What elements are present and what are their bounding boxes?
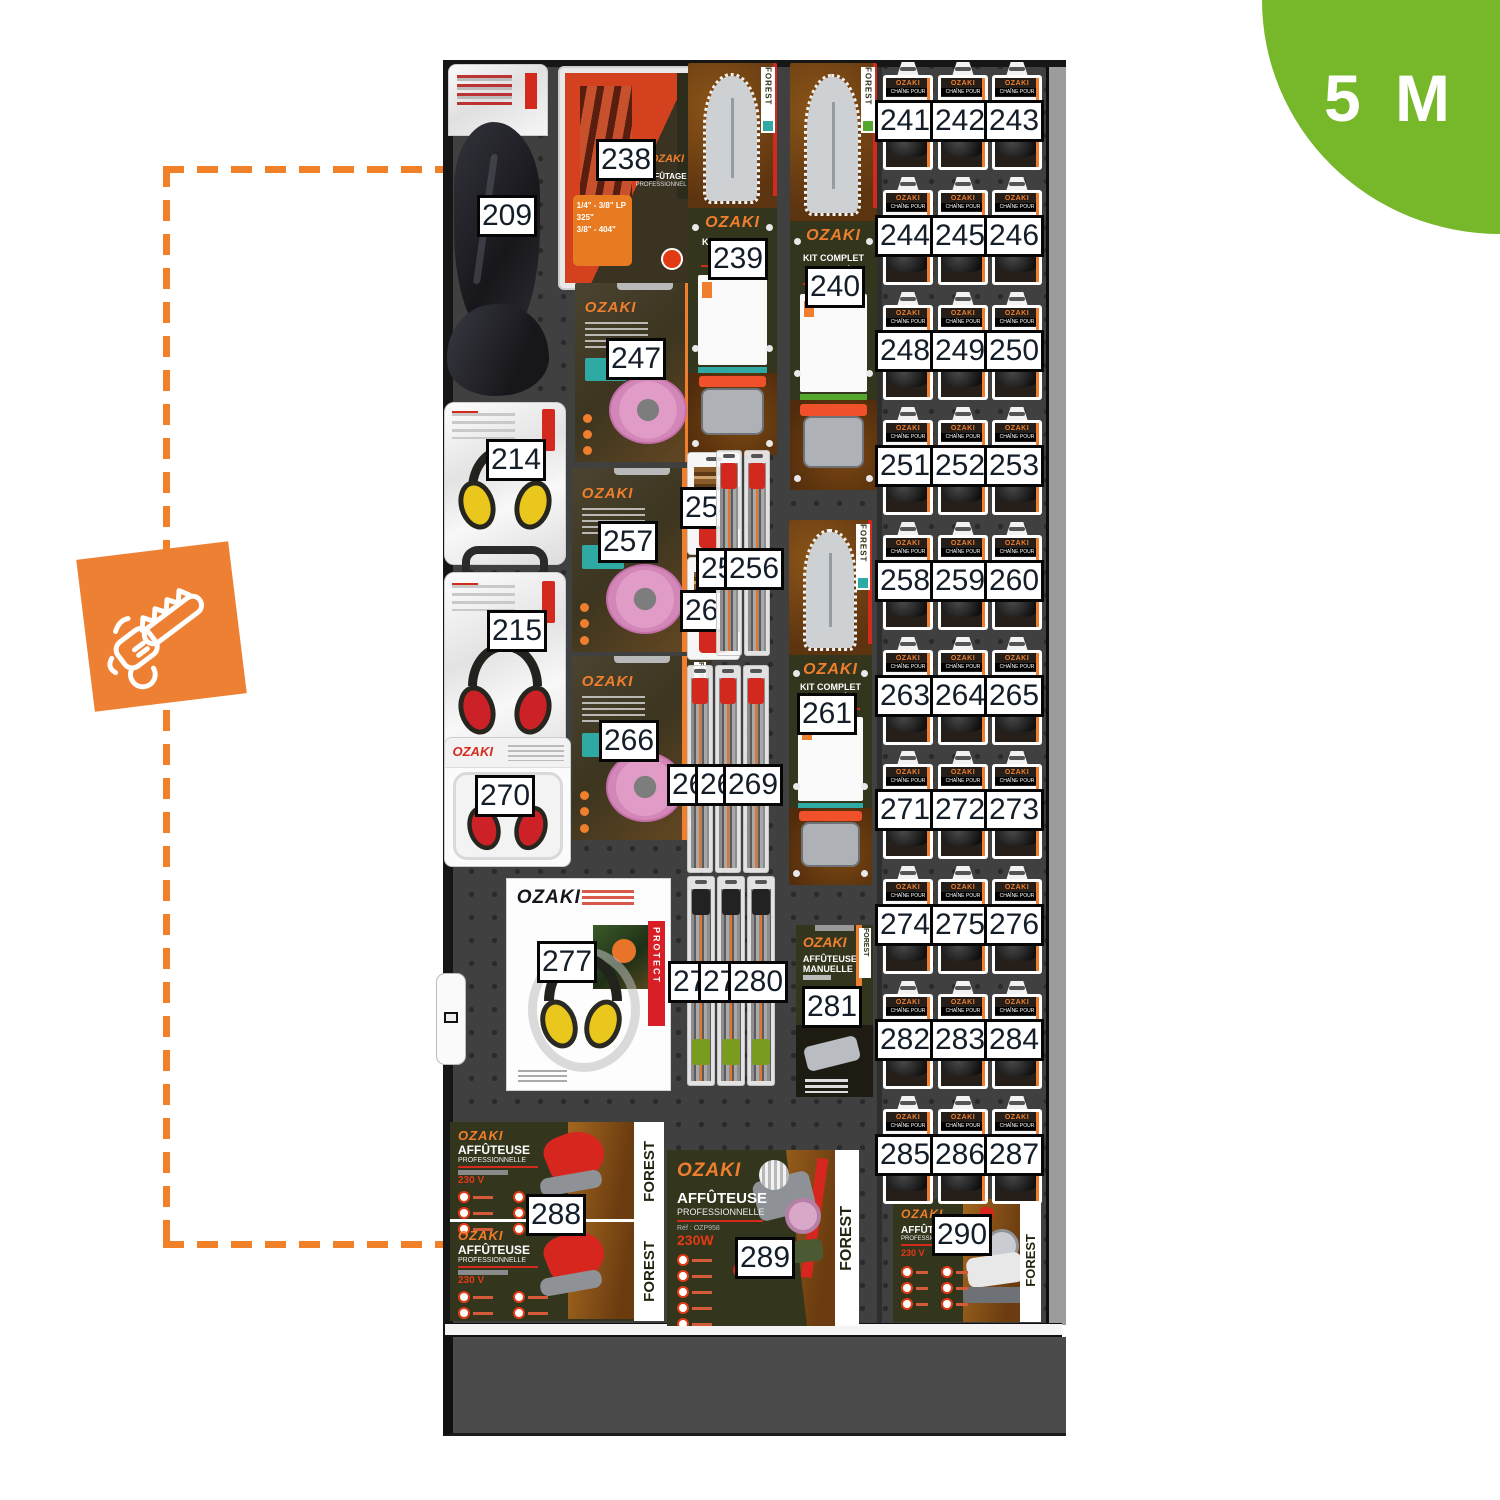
product-285[interactable]: OZAKI CHAÎNE POUR 285 [883,1096,933,1204]
item-number-label: 286 [930,1134,990,1176]
product-276[interactable]: OZAKI CHAÎNE POUR 276 [992,866,1042,974]
forest-tag: FOREST [1023,1234,1038,1287]
banner-title: AFFÛTEUSE [458,1243,558,1257]
brand-logo: OZAKI [995,655,1039,662]
feature-bullet [458,1307,503,1319]
feature-bullet [458,1191,503,1203]
wood-photo-lower [688,373,777,455]
chain-card-title: CHAÎNE POUR [886,1007,930,1015]
chain-card-title: CHAÎNE POUR [941,548,985,556]
hang-strip [815,925,854,931]
product-275[interactable]: OZAKI CHAÎNE POUR 275 [938,866,988,974]
chain-card-title: CHAÎNE POUR [995,433,1039,441]
ear-cup [508,681,556,739]
chain-card-title: CHAÎNE POUR [941,203,985,211]
banner-subtitle: PROFESSIONNELLE [458,1257,558,1264]
chain-card-title: CHAÎNE POUR [941,892,985,900]
brand-logo: OZAKI [995,195,1039,202]
product-259[interactable]: OZAKI CHAÎNE POUR 259 [938,522,988,630]
forest-strip: FOREST FOREST [634,1122,664,1321]
product-242[interactable]: OZAKI CHAÎNE POUR 242 [938,62,988,170]
item-number-label: 288 [526,1194,586,1236]
kit-title: KIT COMPLET [790,253,877,263]
green-handle [692,1039,710,1065]
product-248[interactable]: OZAKI CHAÎNE POUR 248 [883,292,933,400]
product-243[interactable]: OZAKI CHAÎNE POUR 243 [992,62,1042,170]
item-number-label: 240 [805,266,865,308]
peg-hole [861,783,868,790]
item-number-label: 269 [723,764,783,806]
feature-bullet [513,1291,558,1303]
chain-card-title: CHAÎNE POUR [886,1122,930,1130]
item-number-label: 263 [875,675,935,717]
item-number-label: 256 [724,548,784,590]
feature-bullet [901,1266,931,1278]
feature-bullet [677,1286,777,1298]
protect-tag: PROTECT [648,921,665,1026]
category-tile[interactable] [76,541,247,712]
product-260[interactable]: OZAKI CHAÎNE POUR 260 [992,522,1042,630]
product-246[interactable]: OZAKI CHAÎNE POUR 246 [992,177,1042,285]
item-number-label: 273 [984,789,1044,831]
feature-bullet [901,1282,931,1294]
product-238[interactable]: OZAKI KIT AFFÛTAGE PROFESSIONNEL 1/4" - … [558,66,700,290]
guide-bar-end [701,388,763,436]
forest-tag: FOREST [859,928,871,978]
feature-bullet [677,1302,777,1314]
hang-slot [751,454,763,458]
brand-logo: OZAKI [995,769,1039,776]
bullet-icon [580,603,589,612]
brand-logo: OZAKI [803,934,847,950]
chain-card-title: CHAÎNE POUR [886,892,930,900]
product-271[interactable]: OZAKI CHAÎNE POUR 271 [883,751,933,859]
earmuff-display-card: OZAKI PROTECT [506,878,671,1091]
item-number-label: 209 [477,195,537,237]
brand-logo: OZAKI [995,884,1039,891]
product-284[interactable]: OZAKI CHAÎNE POUR 284 [992,981,1042,1089]
brand-logo: OZAKI [941,425,985,432]
chain-card-title: CHAÎNE POUR [941,88,985,96]
chain-card-title: CHAÎNE POUR [995,203,1039,211]
brand-logo: OZAKI [886,540,930,547]
grinding-wheel [606,564,684,634]
item-number-label: 248 [875,330,935,372]
clip-label [444,1012,458,1023]
guide-dash-top [163,166,447,173]
chain-card-title: CHAÎNE POUR [941,663,985,671]
size-badge: 5 M [1262,0,1500,234]
brand-logo: OZAKI [886,1114,930,1121]
product-250[interactable]: OZAKI CHAÎNE POUR 250 [992,292,1042,400]
label-text-lines [452,413,514,439]
brand-logo: OZAKI [886,310,930,317]
item-number-label: 245 [930,215,990,257]
banner-subtitle: PROFESSIONNELLE [677,1207,777,1217]
chain-clamp [699,376,767,387]
bullet-icon [580,791,589,800]
hang-slot [722,669,734,673]
item-number-label: 215 [487,610,547,652]
forest-tag: FOREST [838,1206,856,1271]
item-number-label: 253 [984,445,1044,487]
hang-slot [725,880,737,884]
chain-card-title: CHAÎNE POUR [995,1007,1039,1015]
chain-card-title: CHAÎNE POUR [886,318,930,326]
item-number-label: 246 [984,215,1044,257]
card-subtitle: MANUELLE [803,964,853,974]
product-265[interactable]: OZAKI CHAÎNE POUR 265 [992,637,1042,745]
item-number-label: 259 [930,560,990,602]
item-number-label: 276 [984,904,1044,946]
peg-hole [793,670,800,677]
feature-bullet [941,1282,971,1294]
chain-clamp [799,811,862,821]
chain-card-title: CHAÎNE POUR [941,433,985,441]
bullet-icon [583,414,592,423]
product-283[interactable]: OZAKI CHAÎNE POUR 283 [938,981,988,1089]
hang-slot [755,880,767,884]
divider [677,1220,763,1222]
side-clip-tab[interactable] [436,973,466,1065]
item-number-label: 284 [984,1019,1044,1061]
item-number-label: 249 [930,330,990,372]
brand-logo: OZAKI [886,769,930,776]
chain-card-title: CHAÎNE POUR [941,318,985,326]
label-text-lines [452,585,514,611]
product-287[interactable]: OZAKI CHAÎNE POUR 287 [992,1096,1042,1204]
product-245[interactable]: OZAKI CHAÎNE POUR 245 [938,177,988,285]
brand-logo: OZAKI [582,673,634,690]
peg-hole [861,870,868,877]
brand-logo: OZAKI [886,884,930,891]
sharpener-tool [803,1035,861,1072]
brand-logo: OZAKI [458,1128,558,1143]
item-number-label: 290 [932,1214,992,1256]
item-number-label: 282 [875,1019,935,1061]
item-number-label: 258 [875,560,935,602]
peg-hole [866,475,873,482]
peg-hole [766,440,773,447]
brand-logo: OZAKI [886,80,930,87]
handle-cap [721,463,737,489]
spec-text-lines [582,696,645,722]
earmuff-bag [444,402,566,565]
divider [458,1266,538,1268]
brand-logo: OZAKI [941,655,985,662]
header-text-lines [508,745,564,761]
item-number-label: 265 [984,675,1044,717]
product-214[interactable]: 214 [444,402,566,565]
peg-hole [861,670,868,677]
guide-dash-left [163,166,170,1248]
brand-logo: OZAKI [941,310,985,317]
brand-logo: OZAKI [886,195,930,202]
product-209[interactable]: 209 [448,64,548,402]
brand-logo: OZAKI [886,999,930,1006]
chain-card-title: CHAÎNE POUR [941,1007,985,1015]
chain-card-title: CHAÎNE POUR [995,777,1039,785]
product-274[interactable]: OZAKI CHAÎNE POUR 274 [883,866,933,974]
item-number-label: 214 [486,439,546,481]
item-number-label: 250 [984,330,1044,372]
kit-title: KIT COMPLET [789,682,872,692]
brand-logo: OZAKI [941,195,985,202]
chain-card-title: CHAÎNE POUR [886,88,930,96]
ref-line [803,975,831,980]
chain-card-title: CHAÎNE POUR [886,203,930,211]
product-282[interactable]: OZAKI CHAÎNE POUR 282 [883,981,933,1089]
hang-strip [614,468,670,475]
bullet-icon [580,619,589,628]
peg-hole [793,870,800,877]
peg-hole [692,224,699,231]
forest-tag: FOREST [641,1141,658,1202]
chain-card-title: CHAÎNE POUR [995,88,1039,96]
brand-logo: OZAKI [886,425,930,432]
item-number-label: 242 [930,100,990,142]
peg-hole [692,440,699,447]
fixture-right-side-panel [1046,67,1066,1325]
banner-title: AFFÛTEUSE [458,1143,558,1157]
chain-card-title: CHAÎNE POUR [995,892,1039,900]
item-number-label: 274 [875,904,935,946]
feature-bullet [941,1298,971,1310]
forest-tag: FOREST [861,67,875,133]
ear-cup [453,681,501,739]
footer-text-lines [518,1070,567,1082]
item-number-label: 277 [537,941,597,983]
item-number-label: 238 [596,139,656,181]
peg-hole [866,370,873,377]
brand-roundel [661,248,683,270]
guide-bar-tip [807,77,857,213]
hang-strip [617,283,673,290]
chain-card-title: CHAÎNE POUR [995,548,1039,556]
product-286[interactable]: OZAKI CHAÎNE POUR 286 [938,1096,988,1204]
chain-card-title: CHAÎNE POUR [886,663,930,671]
product-273[interactable]: OZAKI CHAÎNE POUR 273 [992,751,1042,859]
bullet-icon [583,430,592,439]
item-number-label: 239 [708,238,768,280]
peg-hole [794,475,801,482]
item-number-label: 241 [875,100,935,142]
bagged-gear-lower [441,298,553,402]
chain-card-title: CHAÎNE POUR [886,433,930,441]
item-number-label: 260 [984,560,1044,602]
product-256[interactable]: 256 [744,450,770,656]
header-text-lines [457,75,512,105]
banner-text-block: OZAKI AFFÛTEUSE PROFESSIONNELLE 230 V [458,1228,558,1321]
brand-logo: OZAKI [941,540,985,547]
brand-logo: OZAKI [995,999,1039,1006]
brand-logo: OZAKI [688,214,777,232]
brand-logo: OZAKI [995,80,1039,87]
forest-tag: FOREST [761,67,775,133]
hang-slot [694,669,706,673]
brand-logo: OZAKI [677,1160,777,1182]
peg-hole [766,224,773,231]
brand-logo: OZAKI [941,769,985,776]
item-number-label: 243 [984,100,1044,142]
power-rating: 230 V [458,1175,558,1186]
product-289[interactable]: OZAKI AFFÛTEUSE PROFESSIONNELLE Réf : OZ… [667,1150,859,1326]
chain-card-title: CHAÎNE POUR [886,777,930,785]
chain-card-title: CHAÎNE POUR [995,1122,1039,1130]
item-number-label: 271 [875,789,935,831]
product-280[interactable]: 280 [747,876,775,1086]
product-270[interactable]: OZAKI 270 [444,737,571,867]
product-277[interactable]: OZAKI PROTECT 277 [506,878,671,1091]
item-number-label: 270 [475,775,535,817]
item-number-label: 247 [606,338,666,380]
ref-line: Réf : OZP958 [677,1225,777,1232]
product-253[interactable]: OZAKI CHAÎNE POUR 253 [992,407,1042,515]
item-number-label: 264 [930,675,990,717]
swivel-base [963,1287,1023,1303]
handle-cap [722,889,740,915]
wood-photo-lower [789,808,872,885]
bullet-icon [580,824,589,833]
spec-panel [698,275,767,365]
handle-cap [748,678,764,704]
bullet-icon [580,807,589,816]
fixture-base [443,1337,1066,1436]
banner-subtitle: PROFESSIONNELLE [458,1157,558,1164]
item-number-label: 261 [797,693,857,735]
chain-clamp [800,404,866,416]
brand-logo: OZAKI [453,744,493,759]
item-number-label: 252 [930,445,990,487]
hang-slot [750,669,762,673]
header-text-lines [582,890,634,908]
chain-card-title: CHAÎNE POUR [886,548,930,556]
brand-logo: OZAKI [941,999,985,1006]
handle-cap [749,463,765,489]
card-header: OZAKI [445,738,570,768]
product-241[interactable]: OZAKI CHAÎNE POUR 241 [883,62,933,170]
divider [458,1166,538,1168]
product-258[interactable]: OZAKI CHAÎNE POUR 258 [883,522,933,630]
guide-bar-tip [706,76,758,201]
product-240[interactable]: FOREST OZAKI KIT COMPLET GUIDE + CHAÎNE … [790,63,877,490]
item-number-label: 275 [930,904,990,946]
item-number-label: 251 [875,445,935,487]
product-272[interactable]: OZAKI CHAÎNE POUR 272 [938,751,988,859]
feature-bullet [677,1318,777,1326]
feature-bullet [458,1291,503,1303]
brand-logo: OZAKI [941,884,985,891]
feature-bullet [901,1298,931,1310]
brand-logo: OZAKI [585,299,637,316]
size-list: 1/4" - 3/8" LP325"3/8" - 404" [573,195,632,266]
item-number-label: 266 [599,720,659,762]
brand-logo: OZAKI [790,227,877,245]
brand-logo: OZAKI [995,310,1039,317]
red-hang-tab [525,73,537,109]
guide-bar-tip [806,532,854,648]
product-281[interactable]: OZAKI AFFÛTEUSE MANUELLE FOREST 281 [796,925,873,1097]
power-rating: 230 V [458,1275,558,1286]
green-handle [722,1039,740,1065]
banner-row: OZAKI AFFÛTEUSE PROFESSIONNELLE 230 V [450,1222,664,1319]
item-number-label: 289 [735,1237,795,1279]
product-249[interactable]: OZAKI CHAÎNE POUR 249 [938,292,988,400]
peg-hole [766,345,773,352]
product-252[interactable]: OZAKI CHAÎNE POUR 252 [938,407,988,515]
item-number-label: 287 [984,1134,1044,1176]
product-264[interactable]: OZAKI CHAÎNE POUR 264 [938,637,988,745]
chain-card-title: CHAÎNE POUR [941,1122,985,1130]
item-number-label: 244 [875,215,935,257]
planogram-canvas: 209 OZAKI KIT AFFÛTAGE PROFESSIONNEL 1/4… [0,0,1500,1500]
banner-title: AFFÛTEUSE [677,1190,777,1207]
item-number-label: 280 [728,961,788,1003]
peg-hole [793,783,800,790]
product-251[interactable]: OZAKI CHAÎNE POUR 251 [883,407,933,515]
forest-strip: FOREST [1020,1199,1041,1322]
handle-cap [692,889,710,915]
hang-slot [695,880,707,884]
brand-logo: OZAKI [941,80,985,87]
handle-cap [692,678,708,704]
brand-logo: OZAKI [995,1114,1039,1121]
item-number-label: 285 [875,1134,935,1176]
kit-subtitle: PROFESSIONNEL [636,182,687,188]
brand-logo: OZAKI [995,425,1039,432]
caption-lines [805,1079,847,1093]
product-288[interactable]: OZAKI AFFÛTEUSE PROFESSIONNELLE 230 V OZ… [450,1122,664,1321]
brand-logo: OZAKI [886,655,930,662]
spec-panel [800,294,868,392]
product-photo [796,1025,873,1097]
brand-logo: OZAKI [995,540,1039,547]
guide-dash-bottom [163,1241,447,1248]
guide-bar-end [801,822,859,866]
forest-strip: FOREST [835,1150,859,1326]
chain-card-title: CHAÎNE POUR [995,663,1039,671]
guide-bar-end [803,416,864,468]
hang-slot [723,454,735,458]
item-number-label: 281 [802,986,862,1028]
bullet-icon [580,636,589,645]
chain-card-title: CHAÎNE POUR [941,777,985,785]
brand-logo: OZAKI [582,485,634,502]
product-269[interactable]: 269 [743,665,769,873]
feature-bullet [458,1207,503,1219]
wood-photo-lower [790,400,877,490]
brand-logo: OZAKI [941,1114,985,1121]
item-number-label: 283 [930,1019,990,1061]
grinding-wheel [609,376,687,444]
handle-cap [752,889,770,915]
green-handle [752,1039,770,1065]
product-290[interactable]: OZAKI AFFÛTEUSE PROFESSIONNELLE 230 V FO… [893,1199,1041,1322]
brand-logo: OZAKI [517,887,581,909]
product-239[interactable]: FOREST OZAKI KIT COMPLET GUIDE + CHAÎNE … [688,63,777,455]
item-number-label: 257 [598,521,658,563]
peg-hole [794,238,801,245]
chain-card-title: CHAÎNE POUR [995,318,1039,326]
product-261[interactable]: FOREST OZAKI KIT COMPLET GUIDE + CHAÎNE … [789,520,872,885]
product-263[interactable]: OZAKI CHAÎNE POUR 263 [883,637,933,745]
brand-logo: OZAKI [789,661,872,679]
forest-tag: FOREST [856,524,870,590]
peg-hole [866,238,873,245]
size-badge-label: 5 M [1324,60,1458,136]
feature-bullet [513,1307,558,1319]
product-244[interactable]: OZAKI CHAÎNE POUR 244 [883,177,933,285]
